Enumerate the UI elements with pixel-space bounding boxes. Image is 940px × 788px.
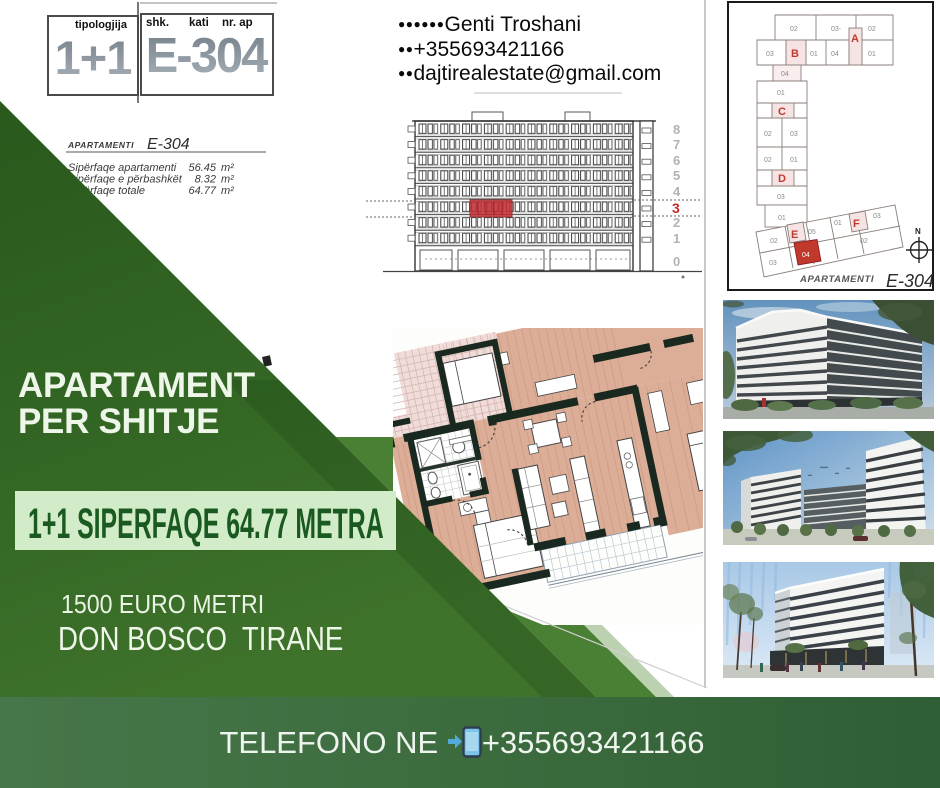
svg-text:02: 02 [764, 157, 772, 164]
svg-text:4: 4 [673, 184, 681, 199]
svg-text:02: 02 [790, 26, 798, 33]
svg-text:01: 01 [777, 90, 785, 97]
svg-text:Sipërfaqe apartamenti: Sipërfaqe apartamenti [68, 162, 177, 174]
svg-text:E: E [791, 229, 798, 241]
svg-text:01: 01 [868, 51, 876, 58]
svg-text:B: B [791, 48, 799, 60]
svg-text:04: 04 [802, 252, 810, 259]
svg-text:56.45: 56.45 [188, 162, 216, 174]
svg-text:E-304: E-304 [147, 136, 190, 153]
svg-text:04: 04 [781, 71, 789, 78]
svg-text:8: 8 [673, 122, 680, 137]
svg-text:1: 1 [673, 231, 680, 246]
svg-text:2: 2 [673, 215, 680, 230]
svg-text:5: 5 [673, 168, 680, 183]
svg-text:03: 03 [790, 131, 798, 138]
svg-text:0: 0 [673, 254, 680, 269]
svg-text:01: 01 [790, 157, 798, 164]
svg-text:03: 03 [769, 260, 777, 267]
svg-text:01: 01 [834, 220, 842, 227]
svg-text:8.32: 8.32 [195, 174, 216, 186]
svg-text:Sipërfaqe e përbashkët: Sipërfaqe e përbashkët [68, 174, 183, 186]
svg-text:A: A [851, 33, 859, 45]
svg-text:02: 02 [764, 131, 772, 138]
svg-text:m²: m² [221, 185, 234, 197]
svg-text:03: 03 [777, 194, 785, 201]
svg-text:APARTAMENTI: APARTAMENTI [67, 140, 134, 150]
svg-text:05: 05 [808, 229, 816, 236]
svg-text:C: C [778, 106, 786, 118]
svg-text:02: 02 [770, 238, 778, 245]
svg-text:03-: 03- [831, 26, 842, 33]
svg-text:02: 02 [860, 238, 868, 245]
svg-text:D: D [778, 173, 786, 185]
svg-text:03: 03 [766, 51, 774, 58]
svg-text:64.77: 64.77 [188, 185, 216, 197]
svg-text:m²: m² [221, 162, 234, 174]
svg-text:01: 01 [778, 215, 786, 222]
svg-text:7: 7 [673, 137, 680, 152]
svg-text:APARTAMENTI: APARTAMENTI [799, 274, 874, 285]
svg-text:3: 3 [672, 200, 680, 216]
svg-text:6: 6 [673, 153, 680, 168]
svg-text:03: 03 [873, 213, 881, 220]
svg-text:F: F [853, 218, 860, 230]
svg-text:02: 02 [868, 26, 876, 33]
svg-text:N: N [915, 227, 921, 236]
svg-text:04: 04 [831, 51, 839, 58]
svg-text:01: 01 [810, 51, 818, 58]
svg-text:m²: m² [221, 174, 234, 186]
svg-text:E-304: E-304 [886, 271, 934, 291]
